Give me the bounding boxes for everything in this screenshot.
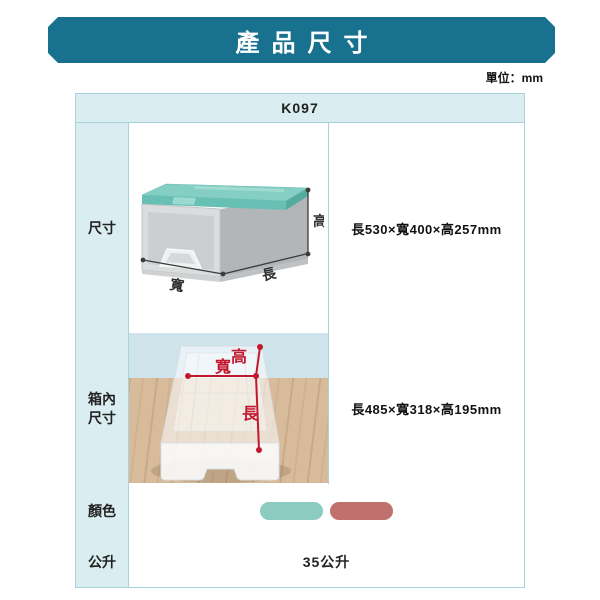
row-label-liters: 公升 bbox=[76, 537, 129, 587]
row-label-inner-dimensions: 箱內尺寸 bbox=[76, 333, 129, 484]
liters-value: 35公升 bbox=[303, 552, 351, 572]
row-colors: 顏色 bbox=[76, 484, 524, 537]
model-number: K097 bbox=[76, 94, 524, 122]
inner-height-label: 高 bbox=[231, 347, 247, 366]
unit-label: 單位：mm bbox=[486, 69, 543, 86]
product-image: 高 長 寬 bbox=[134, 177, 324, 299]
inner-box-photo: 高 寬 長 bbox=[129, 333, 329, 483]
inner-width-label: 寬 bbox=[214, 357, 231, 376]
page-title: 產品尺寸 bbox=[224, 23, 380, 58]
spec-table: K097 尺寸 bbox=[75, 93, 525, 588]
inner-dimensions-value: 長485×寬318×高195mm bbox=[329, 333, 524, 484]
liters-value-cell: 35公升 bbox=[129, 537, 524, 587]
product-render-cell: 高 長 寬 bbox=[129, 123, 329, 333]
color-swatches-cell bbox=[129, 484, 524, 537]
inner-box-image: 高 寬 長 bbox=[129, 333, 329, 483]
outer-dimensions-value: 長530×寬400×高257mm bbox=[329, 123, 524, 333]
row-outer-dimensions: 尺寸 bbox=[76, 123, 524, 333]
height-dim-label: 高 bbox=[313, 213, 324, 229]
inner-length-label: 長 bbox=[242, 405, 259, 423]
title-banner: 產品尺寸 bbox=[48, 17, 555, 63]
row-label-color: 顏色 bbox=[76, 484, 129, 537]
inner-photo-cell: 高 寬 長 bbox=[129, 333, 329, 484]
color-swatch-teal bbox=[260, 502, 323, 520]
product-spec-sheet: 產品尺寸 單位：mm K097 尺寸 bbox=[0, 0, 600, 600]
row-label-dimensions: 尺寸 bbox=[76, 123, 129, 333]
table-header-row: K097 bbox=[76, 94, 524, 123]
row-liters: 公升 35公升 bbox=[76, 537, 524, 587]
row-inner-dimensions: 箱內尺寸 bbox=[76, 333, 524, 484]
width-dim-label: 寬 bbox=[167, 276, 185, 294]
color-swatch-rose bbox=[330, 502, 393, 520]
